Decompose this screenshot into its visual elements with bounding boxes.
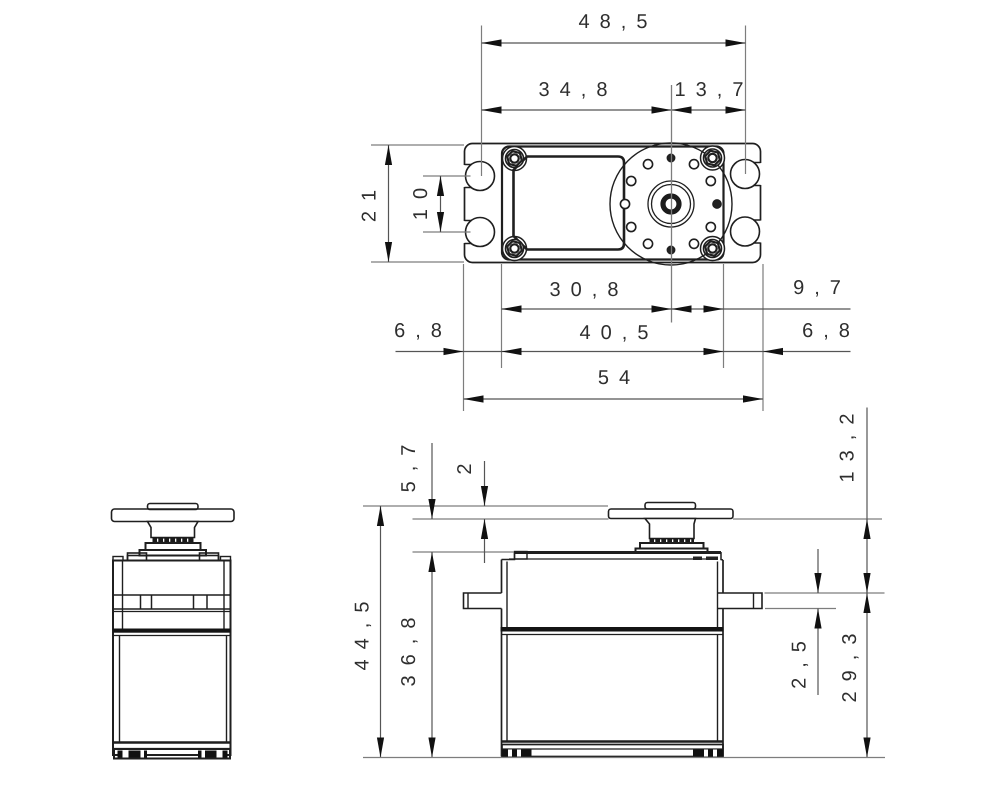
svg-text:10: 10	[410, 178, 432, 220]
svg-text:40,5: 40,5	[580, 322, 659, 344]
svg-text:30,8: 30,8	[550, 279, 629, 301]
svg-text:48,5: 48,5	[579, 11, 658, 33]
svg-text:36,8: 36,8	[398, 608, 420, 687]
svg-text:5,7: 5,7	[398, 435, 420, 493]
svg-text:6,8: 6,8	[802, 320, 860, 342]
svg-text:2: 2	[454, 453, 476, 474]
svg-text:54: 54	[598, 367, 640, 389]
svg-text:13,2: 13,2	[837, 404, 859, 483]
svg-text:21: 21	[359, 180, 381, 222]
svg-text:9,7: 9,7	[793, 277, 851, 299]
svg-text:34,8: 34,8	[539, 79, 618, 101]
svg-text:2,5: 2,5	[789, 631, 811, 689]
svg-text:6,8: 6,8	[394, 320, 452, 342]
svg-text:29,3: 29,3	[839, 624, 861, 703]
svg-text:13,7: 13,7	[675, 79, 754, 101]
svg-text:44,5: 44,5	[352, 592, 374, 671]
